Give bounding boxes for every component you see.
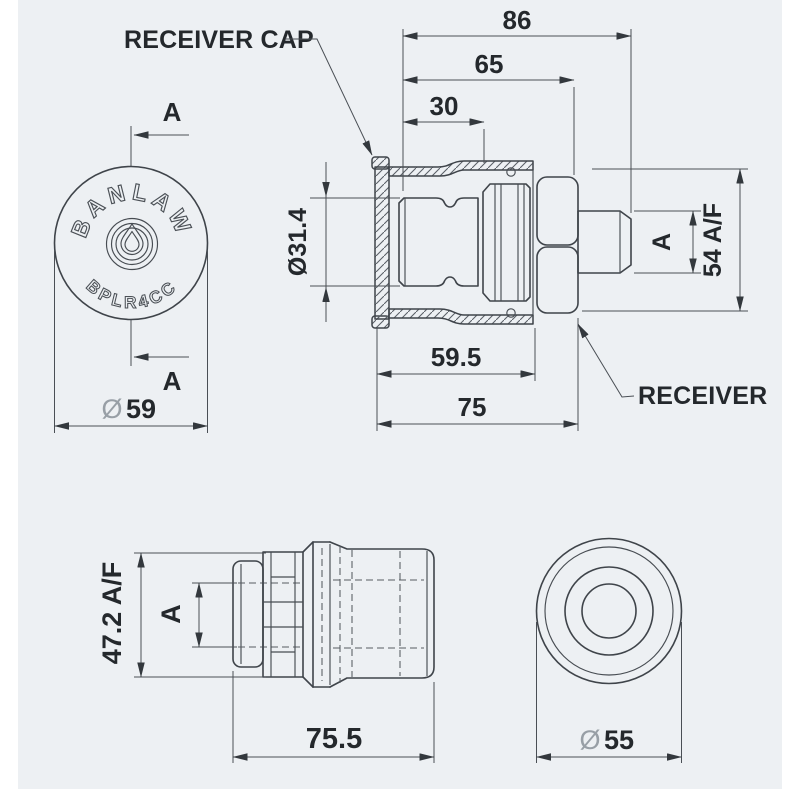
technical-drawing: A BANLAW BPLR4CC A Ø 59 [0, 0, 800, 800]
dim-86-value: 86 [503, 5, 532, 35]
section-letter-bottom: A [163, 366, 182, 396]
dim-dia-31-4-value: Ø31.4 [284, 208, 312, 276]
dim-30-value: 30 [430, 91, 459, 121]
dia-symbol: Ø [579, 725, 600, 755]
dim-a-thread-value: A [156, 604, 186, 624]
receiver-cap-label-text: RECEIVER CAP [124, 26, 314, 54]
dim-dia-59-value: 59 [126, 394, 156, 424]
section-letter-top: A [163, 97, 182, 127]
dim-a-stud-value: A [648, 233, 676, 251]
dim-dia-55-value: 55 [604, 725, 634, 755]
dim-75-value: 75 [458, 392, 487, 422]
dia-symbol: Ø [101, 394, 122, 424]
dim-47-2-af-value: 47.2 A/F [97, 562, 127, 665]
dim-54-af-value: 54 A/F [699, 203, 727, 277]
dim-75-5-value: 75.5 [306, 723, 362, 755]
cap-left-wall [375, 167, 389, 319]
dim-65-value: 65 [475, 49, 504, 79]
receiver-label-text: RECEIVER [638, 382, 767, 410]
dim-59-5-value: 59.5 [431, 342, 482, 372]
page: A BANLAW BPLR4CC A Ø 59 [0, 0, 800, 800]
